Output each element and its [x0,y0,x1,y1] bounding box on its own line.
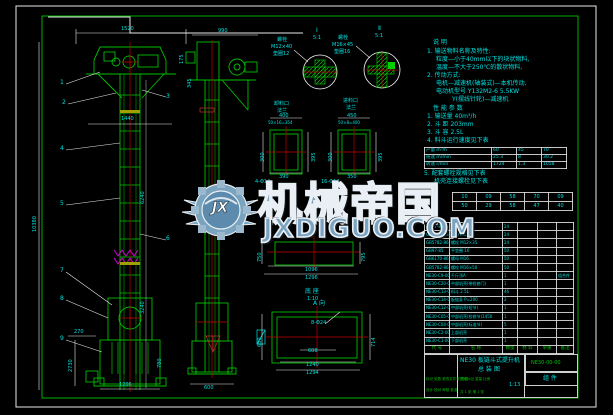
table-cell: NE30-C1-00 [425,337,450,345]
dim-label: 螺栓 [338,36,348,41]
dim-label: 5:1 [313,36,321,41]
part-class: 组 件 [543,375,557,383]
dim-label: Ⅱ [378,26,381,32]
balloon-number: 1 [60,80,64,86]
table-cell [538,263,557,271]
table-cell: 70 [525,193,549,202]
dim-label: 卸料口 [274,102,289,107]
table-cell: 平垫圈 16 [450,247,503,255]
table-cell: 29 [477,202,501,211]
table-cell [557,329,574,337]
dim-label: 电动机型号 Y132M2-6 5.5KW [436,89,519,95]
table-cell: 24 [503,223,518,231]
balloon-number: 5 [60,201,64,207]
front-view [86,47,176,390]
table-cell [538,329,557,337]
dim-label: 3240 [141,301,146,314]
table-cell [557,239,574,247]
table-cell: 46 [503,288,518,296]
dim-label: 法兰 [346,106,356,111]
table-cell: 1 [503,272,518,280]
dim-label: 1096 [305,268,318,273]
table-cell: GB97-85 [425,247,450,255]
table-cell: 组合件 [557,272,574,280]
dim-label: 法兰 [277,109,287,114]
balloon-number: 2 [62,100,66,106]
table-cell [557,313,574,321]
table-cell [538,247,557,255]
watermark-site: JXDIGUO.COM [263,214,476,244]
table-cell: NE30-C14-00 [425,296,450,304]
table-cell [518,321,538,329]
table-cell [518,337,538,345]
dim-label: 1206 [119,383,132,388]
table-cell [557,321,574,329]
dim-label: 270 [74,330,84,335]
table-cell: 料斗 2.5L [450,288,503,296]
table-cell: 50 [453,202,477,211]
table-cell: 代 号 [425,345,450,353]
dim-label: M12×40 [271,45,292,50]
table-cell: NE30-C13-00 [425,288,450,296]
table-cell: 24 [503,231,518,239]
table-cell: NE30-C05-00 [425,313,450,321]
table-cell [538,288,557,296]
table-cell [538,296,557,304]
table-cell: 1 [503,329,518,337]
dim-label: 8-Φ24 [311,321,326,326]
dim-label: 1296 [305,276,318,281]
table-cell [518,231,538,239]
table-cell [518,263,538,271]
table-cell: 10 [453,193,477,202]
dim-label: 608 [308,349,318,354]
table-cell [557,304,574,312]
table-cell: 中部机壳(检修节)1450 [450,313,503,321]
table-cell: 链速 m/min [425,155,492,162]
title-product: NE30 板链斗式提升机 [460,357,520,365]
dim-label: 1. 输送物料名称及特性: [427,49,491,55]
table-cell: 数量 [503,345,518,353]
table-cell: 产量 m³/h [425,148,492,155]
table-cell: 47 [525,202,549,211]
table-cell: 40 [549,202,573,211]
dim-label: 395 [379,152,384,162]
table-cell: 1 [503,337,518,345]
table-cell: 2 [503,296,518,304]
watermark-initials: JX [212,200,228,216]
dim-label: 垫圈12 [273,52,289,57]
table-cell [518,239,538,247]
table-cell [557,223,574,231]
table-cell [557,247,574,255]
table-cell [538,231,557,239]
table-cell [557,337,574,345]
dim-label: 底 座 [305,289,319,295]
table-cell [518,272,538,280]
table-cell [538,304,557,312]
dim-label: 1520 [121,27,134,32]
table-cell: NE30-C20-00 [425,280,450,288]
dim-label: 温度—不大于250℃的散状物料, [436,65,522,71]
balloon-number: 6 [166,236,170,242]
dim-label: 1240 [306,363,319,368]
dim-label: M16×45 [332,43,353,48]
dim-label: 2730 [69,359,74,372]
title-doc-type: 总 装 图 [478,366,500,374]
dim-label: 说 明 [433,40,447,46]
balloon-number: 8 [60,296,64,302]
dim-label: 345 [188,78,193,88]
dim-label: 50×8=400 [338,121,360,125]
table-cell [518,247,538,255]
table-cell [518,255,538,263]
dim-label: 400 [279,114,289,119]
table-cell: 备注 [557,345,574,353]
dim-label: Ⅰ [316,28,318,34]
dim-label: 5:1 [375,34,383,39]
signature-row: 设计 校对 审核 批准 [426,388,457,392]
sheet-count: 共 1 张 第 1 张 [460,390,484,394]
dim-label: 粒度—小于40mm以下的块状物料, [436,57,529,63]
dim-label: 螺栓 [277,38,287,43]
table-cell: 1 [503,280,518,288]
table-cell [538,280,557,288]
performance-table: 产量 m³/h604570链速 m/min25.3830.2转速 r/min17… [424,147,567,169]
dim-label: 714 [372,337,377,347]
dim-label: 600 [204,386,214,391]
table-cell [538,337,557,345]
table-cell: 1724 [492,162,517,169]
dim-label: 650 [258,337,263,347]
table-cell [518,304,538,312]
dim-label: 300 [329,152,334,162]
balloon-number: 7 [60,268,64,274]
table-cell: 58 [501,202,525,211]
dim-label: 垫圈16 [334,50,350,55]
table-cell: NE30-C12-00 [425,304,450,312]
table-cell [518,223,538,231]
table-cell [518,280,538,288]
table-cell [518,313,538,321]
table-cell: 60 [492,148,517,155]
table-cell: 名 称 [450,345,503,353]
table-cell: GB5782-86 [425,263,450,271]
table-cell: 1 [503,313,518,321]
table-cell: 5 [503,321,518,329]
dim-label: 6240 [141,191,146,204]
table-cell [538,239,557,247]
table-cell [538,313,557,321]
table-cell [557,263,574,271]
table-cell: 下部机壳 [450,337,503,345]
stage-row: 阶段标记 重量 比例 [460,377,490,381]
table-cell: 1 [503,304,518,312]
table-cell: GB6170-86 [425,255,450,263]
table-cell: 09 [477,193,501,202]
table-cell: 24 [503,239,518,247]
dim-label: 780 [158,358,163,368]
table-cell: 30.2 [542,155,567,162]
dim-label: 4. 料斗运行速度见下表 [427,138,489,144]
table-cell [518,288,538,296]
dim-label: 2. 传动方式: [427,73,461,79]
table-cell: 中部机壳(标准节) [450,321,503,329]
dim-label: 2. 斗 距 203mm [427,122,474,128]
table-cell [557,288,574,296]
balloon-number: 9 [60,336,64,342]
table-cell: 70 [542,148,567,155]
table-cell [538,321,557,329]
table-cell: 58 [501,193,525,202]
table-cell [518,296,538,304]
table-cell: 螺母 M16 [450,255,503,263]
table-cell: 板链条 P=200 [450,296,503,304]
table-cell: 单重 [538,345,557,353]
dim-label: 进料口 [343,99,358,104]
table-cell: NE30-C9-00 [425,272,450,280]
table-cell: NE30-C2-00 [425,329,450,337]
dim-label: 电机—减速机(轴装式)—本机传动, [436,81,527,87]
table-cell: 50 [503,255,518,263]
dim-label: 795 [362,252,367,262]
table-cell: 25.3 [492,155,517,162]
table-cell [538,272,557,280]
table-cell: 1058 [542,162,567,169]
dim-label: 990 [218,29,228,34]
dim-label: 750 [258,252,263,262]
drawing-number: NE30-00-00 [531,360,561,366]
table-cell: 中部机壳(带检修门) [450,280,503,288]
table-cell: NE30-C04-00 [425,321,450,329]
table-cell [538,255,557,263]
sprocket-table: 10095870095029584740 [452,192,573,211]
dim-label: 10380 [33,216,38,232]
dim-label: 性 能 参 数 [433,106,463,112]
table-cell [557,296,574,304]
dim-label: 1. 输送量 40m³/h [427,114,476,120]
dim-label: 1294 [306,371,319,376]
table-cell: 千斤顶A [450,272,503,280]
scale-value: 1:13 [509,382,520,388]
dim-label: Y(摆线针轮)—减速机 [452,97,508,103]
dim-label: 300 [261,152,266,162]
table-cell: 材 料 [518,345,538,353]
table-cell: 50 [503,263,518,271]
table-cell: 中部机壳(短节) [450,304,503,312]
table-cell [518,329,538,337]
table-cell [557,231,574,239]
dim-label: 450 [347,114,357,119]
table-cell: 8 [517,155,542,162]
table-cell: 螺栓 M16×50 [450,263,503,271]
balloon-number: 3 [166,94,170,100]
table-cell: 09 [549,193,573,202]
table-cell: 45 [517,148,542,155]
dim-label: 50×16=354 [268,121,293,125]
dim-label: 3. 斗 容 2.5L [427,130,463,136]
table-cell: 1.3 [517,162,542,169]
table-cell: 50 [503,247,518,255]
dim-label: 175 [180,54,185,64]
table-cell: 上部机壳 [450,329,503,337]
table-cell [538,223,557,231]
dim-label: 395 [312,152,317,162]
balloon-number: 4 [60,146,64,152]
table-cell [557,280,574,288]
dim-label: 1440 [121,117,134,122]
table-cell [557,255,574,263]
cad-sheet: JX 机械帝国 JXDIGUO.COM 说 明1. 输送物料名称及特性:粒度—小… [0,0,613,415]
dim-label: 机壳连接螺栓见下表 [434,179,488,185]
dim-label: A 向 [313,301,325,307]
